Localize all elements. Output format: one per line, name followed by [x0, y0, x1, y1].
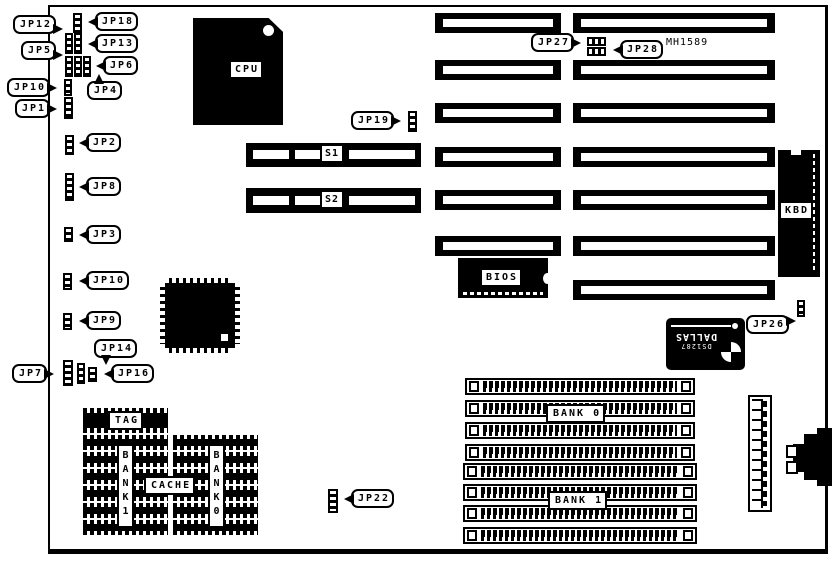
simm-socket — [465, 378, 695, 395]
socket-stripe — [295, 196, 320, 205]
simm-socket — [463, 527, 697, 544]
callout-text: JP9 — [93, 315, 117, 326]
qfp-pins — [169, 348, 231, 353]
pointer-icon — [47, 83, 57, 93]
pointer-icon — [613, 45, 623, 55]
pointer-icon — [79, 276, 89, 286]
bios-notch — [543, 273, 552, 284]
socket-stripe — [253, 150, 289, 159]
qfp-chip — [160, 278, 240, 353]
callout-text: JP19 — [358, 115, 390, 126]
bios-chip: BIOS — [458, 258, 548, 298]
callout-jp13: JP13 — [95, 34, 138, 53]
kbd-label: KBD — [781, 203, 811, 218]
callout-jp26: JP26 — [746, 315, 789, 334]
jumper-jp1 — [64, 97, 73, 119]
pointer-icon — [391, 116, 401, 126]
callout-text: JP2 — [93, 137, 117, 148]
jumper-jp19 — [408, 111, 417, 132]
dallas-dot — [732, 323, 738, 329]
callout-text: JP12 — [20, 19, 52, 30]
pointer-icon — [104, 369, 114, 379]
jumper-jp2 — [65, 135, 74, 155]
qfp-pin1-dot — [221, 334, 228, 341]
isa-slot — [573, 13, 775, 33]
power-connector — [748, 395, 772, 512]
simm-pins — [483, 447, 677, 458]
isa-slot — [435, 147, 561, 167]
callout-text: JP1 — [22, 103, 46, 114]
callout-text: JP4 — [94, 85, 118, 96]
callout-text: JP6 — [110, 60, 134, 71]
tag-label: TAG — [108, 411, 143, 430]
jumper-jp10-top — [64, 79, 72, 96]
s1-label: S1 — [322, 146, 342, 161]
callout-text: JP8 — [93, 181, 117, 192]
jumper-jp27 — [587, 37, 606, 46]
callout-jp19: JP19 — [351, 111, 394, 130]
cache-bank0-label: BANK0 — [208, 444, 225, 528]
simm-socket — [465, 444, 695, 461]
jumper-jp28 — [587, 47, 606, 56]
socket-s1: S1 — [246, 143, 421, 167]
pointer-icon — [88, 39, 98, 49]
din-connector — [804, 434, 818, 480]
jumper-jp7 — [63, 360, 73, 386]
jumper-jp12 — [65, 33, 73, 54]
s2-label: S2 — [322, 192, 342, 207]
pointer-icon — [79, 316, 89, 326]
callout-text: JP26 — [753, 319, 785, 330]
cpu-chip: CPU — [193, 18, 283, 125]
din-connector — [817, 428, 832, 486]
jumper-jp26 — [797, 300, 805, 317]
callout-text: JP10 — [14, 82, 46, 93]
jumper-jp9 — [63, 313, 72, 330]
isa-slot — [573, 236, 775, 256]
callout-text: JP28 — [627, 44, 659, 55]
kbd-notch — [791, 150, 801, 155]
callout-text: JP18 — [102, 16, 134, 27]
jumper-jp6 — [83, 56, 91, 77]
pointer-icon — [79, 182, 89, 192]
qfp-pins — [235, 287, 240, 344]
dallas-model: DS1287 — [668, 341, 724, 351]
pointer-icon — [44, 369, 54, 379]
isa-slot — [573, 60, 775, 80]
callout-text: JP10 — [93, 275, 125, 286]
pointer-icon — [88, 17, 98, 27]
pointer-icon — [53, 50, 63, 60]
mh1589-label: MH1589 — [666, 37, 708, 49]
callout-jp7: JP7 — [12, 364, 47, 383]
isa-slot — [435, 103, 561, 123]
motherboard-jumper-diagram: CPU S1 S2 BIOS KBD DS1287 DALLA — [0, 0, 832, 565]
callout-jp5: JP5 — [21, 41, 56, 60]
simm-socket — [465, 422, 695, 439]
jumper-jp10-mid — [63, 273, 72, 290]
callout-jp4: JP4 — [87, 81, 122, 100]
cpu-label: CPU — [231, 62, 261, 77]
socket-stripe — [253, 196, 289, 205]
callout-text: JP13 — [102, 38, 134, 49]
bank0-label: BANK 0 — [546, 404, 605, 423]
callout-jp10-mid: JP10 — [86, 271, 129, 290]
kbd-chip: KBD — [778, 150, 820, 277]
callout-jp2: JP2 — [86, 133, 121, 152]
callout-text: JP14 — [101, 343, 133, 354]
jumper-jp13 — [74, 33, 82, 54]
jumper-jp14 — [77, 363, 85, 384]
bank1-label: BANK 1 — [548, 491, 607, 510]
din-socket — [786, 445, 798, 458]
jumper-jp18 — [73, 13, 82, 33]
isa-slot — [573, 280, 775, 300]
pointer-icon — [344, 494, 354, 504]
pointer-icon — [53, 24, 63, 34]
power-pins — [763, 401, 767, 506]
pointer-icon — [786, 316, 796, 326]
callout-jp10-top: JP10 — [7, 78, 50, 97]
isa-slot — [573, 190, 775, 210]
isa-slot — [573, 147, 775, 167]
dallas-stripe — [671, 325, 731, 327]
callout-jp28: JP28 — [620, 40, 663, 59]
simm-pins — [481, 466, 679, 477]
callout-jp16: JP16 — [111, 364, 154, 383]
isa-slot — [573, 103, 775, 123]
callout-jp1: JP1 — [15, 99, 50, 118]
callout-jp22: JP22 — [351, 489, 394, 508]
cpu-pin1-dot — [263, 25, 274, 36]
socket-s2: S2 — [246, 188, 421, 213]
pointer-icon — [47, 104, 57, 114]
callout-jp9: JP9 — [86, 311, 121, 330]
callout-text: JP5 — [28, 45, 52, 56]
simm-socket — [463, 463, 697, 480]
isa-slot — [435, 190, 561, 210]
dallas-text: DS1287 DALLAS — [668, 331, 724, 351]
jumper-jp5 — [65, 56, 73, 77]
isa-slot — [435, 236, 561, 256]
isa-slot — [435, 60, 561, 80]
callout-text: JP3 — [93, 229, 117, 240]
callout-jp27: JP27 — [531, 33, 574, 52]
callout-text: JP22 — [358, 493, 390, 504]
bios-label: BIOS — [482, 270, 520, 285]
jumper-jp16 — [88, 367, 97, 382]
callout-jp12: JP12 — [13, 15, 56, 34]
socket-stripe — [295, 150, 320, 159]
pointer-icon — [96, 61, 106, 71]
jumper-jp22 — [328, 489, 338, 513]
callout-text: JP7 — [19, 368, 43, 379]
callout-text: JP27 — [538, 37, 570, 48]
jumper-jp4 — [74, 56, 82, 77]
pointer-icon — [79, 230, 89, 240]
callout-jp3: JP3 — [86, 225, 121, 244]
pointer-icon — [571, 38, 581, 48]
socket-stripe — [349, 150, 415, 159]
jumper-jp8 — [65, 173, 74, 201]
dallas-logo-icon — [721, 342, 741, 362]
callout-text: JP16 — [118, 368, 150, 379]
callout-jp6: JP6 — [103, 56, 138, 75]
pointer-icon — [101, 355, 111, 365]
simm-pins — [483, 381, 677, 392]
simm-pins — [483, 425, 677, 436]
callout-jp18: JP18 — [95, 12, 138, 31]
jumper-jp3 — [64, 227, 73, 242]
isa-slot — [435, 13, 561, 33]
cache-bank1-label: BANK1 — [117, 444, 134, 528]
cache-label: CACHE — [144, 476, 195, 495]
pointer-icon — [94, 74, 104, 84]
simm-pins — [481, 530, 679, 541]
socket-stripe — [349, 196, 415, 205]
pointer-icon — [79, 138, 89, 148]
dallas-rtc-chip: DS1287 DALLAS — [666, 318, 745, 370]
power-pins — [752, 399, 763, 508]
callout-jp14: JP14 — [94, 339, 137, 358]
din-socket — [786, 461, 798, 474]
dallas-brand: DALLAS — [668, 331, 724, 341]
callout-jp8: JP8 — [86, 177, 121, 196]
